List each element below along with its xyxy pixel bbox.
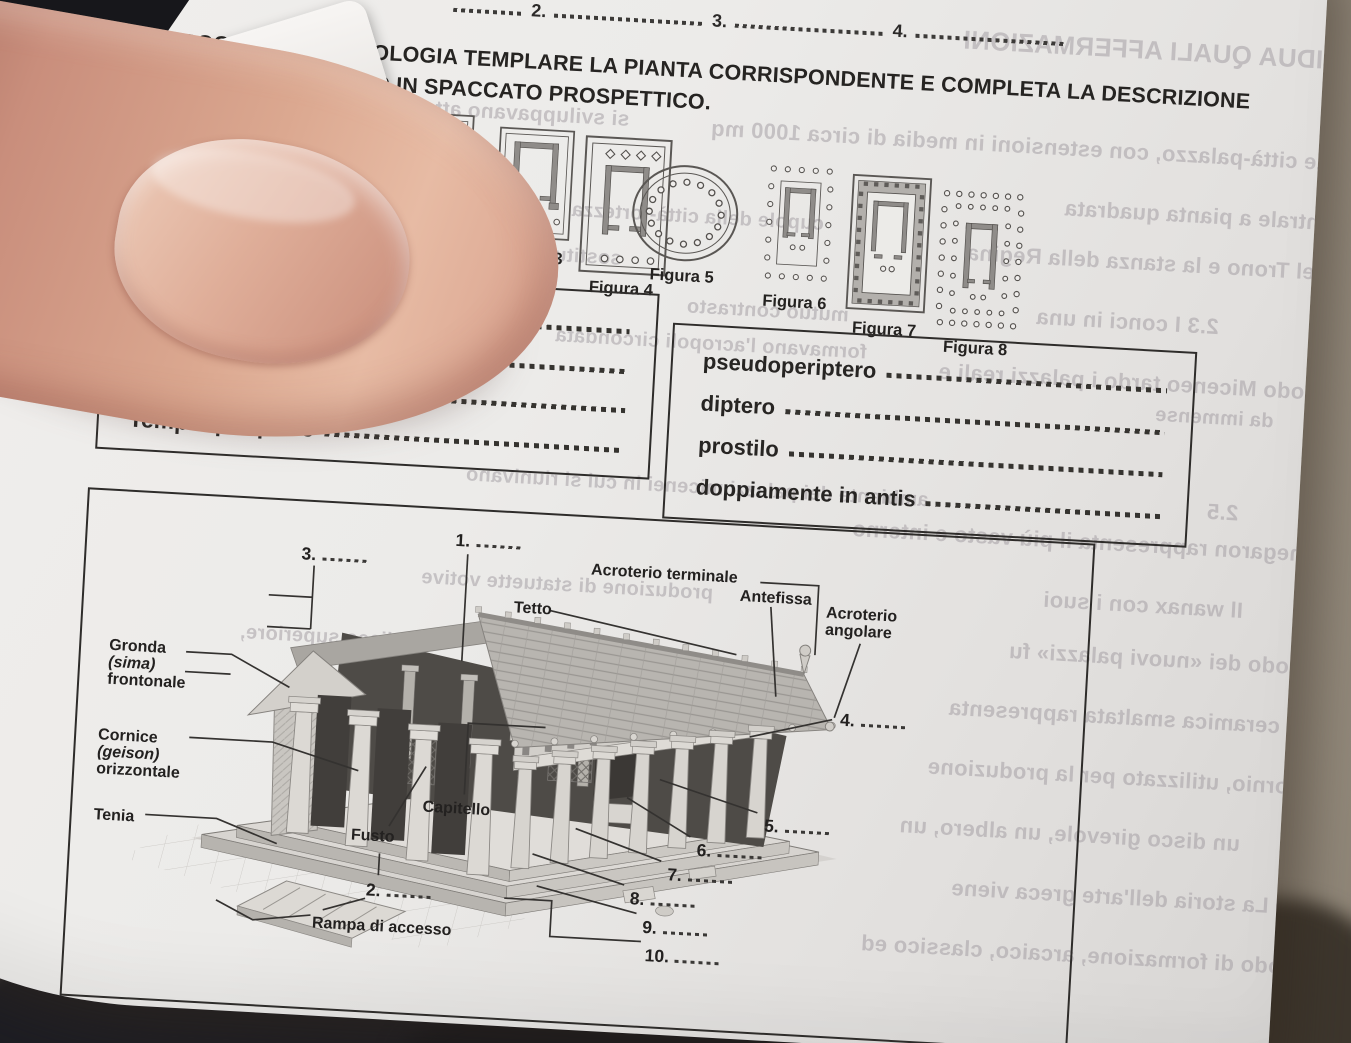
typology-label: doppiamente in antis [695, 474, 916, 512]
typology-label: diptero [700, 390, 776, 420]
previous-exercise-blanks: 2. 3. 4. [445, 0, 1074, 52]
label-gronda: Gronda(sima)frontonale [107, 637, 188, 692]
dotted-blank[interactable] [788, 451, 1162, 477]
match-row: prostilo [698, 432, 1164, 484]
label-tenia: Tenia [93, 806, 134, 825]
photo-frame: 2. INDIVIDUA QUALI AFFERMAZIONI si svilu… [0, 0, 1351, 1043]
typology-label: prostilo [698, 432, 780, 462]
blank-8[interactable]: 8. [629, 888, 697, 913]
dotted-blank [735, 24, 885, 36]
match-row: pseudoperiptero [702, 348, 1168, 400]
blank-9[interactable]: 9. [642, 917, 710, 942]
label-cornice: Cornice(geison)orizzontale [96, 726, 182, 782]
typology-label: pseudoperiptero [702, 348, 877, 384]
dotted-blank[interactable] [925, 501, 1160, 519]
blank-2[interactable]: 2. [365, 879, 433, 904]
dotted-blank[interactable] [886, 373, 1167, 394]
temple-diagram-box: 1. 3. Acroterio terminale Antefissa Acro… [60, 487, 1096, 1043]
match-row: doppiamente in antis [695, 474, 1161, 526]
plan-figure-6: Figura 6 [754, 155, 843, 314]
dotted-blank[interactable] [785, 409, 1165, 435]
temple-plan-monoptero [627, 160, 744, 266]
temple-plan-pseudoperiptero [842, 168, 936, 319]
match-row: diptero [700, 390, 1166, 442]
blank-3[interactable]: 3. [301, 543, 369, 568]
label-acroterio-angolare: Acroterio angolare [825, 605, 931, 645]
blank-number: 2. [531, 0, 547, 22]
plan-figure-7: Figura 7 [841, 168, 936, 342]
blank-7[interactable]: 7. [667, 864, 735, 889]
blank-1[interactable]: 1. [455, 530, 523, 555]
blank-4[interactable]: 4. [840, 710, 908, 735]
blank-5[interactable]: 5. [764, 816, 832, 841]
temple-plan-diptero [928, 181, 1032, 338]
label-fusto: Fusto [351, 827, 395, 846]
match-box-right: pseudoperiptero diptero prostilo doppiam… [662, 323, 1197, 548]
blank-number: 4. [892, 21, 908, 43]
temple-plan-periptero [755, 155, 842, 291]
temple-cutaway-illustration [62, 489, 1089, 1043]
dotted-blank [453, 8, 523, 16]
blank-number: 3. [711, 10, 727, 32]
dotted-blank [554, 14, 704, 26]
plan-figure-5: Figura 5 [625, 160, 744, 289]
label-tetto: Tetto [513, 599, 552, 618]
blank-6[interactable]: 6. [696, 840, 764, 865]
blank-10[interactable]: 10. [644, 945, 721, 970]
plan-figure-8: Figura 8 [927, 181, 1033, 361]
